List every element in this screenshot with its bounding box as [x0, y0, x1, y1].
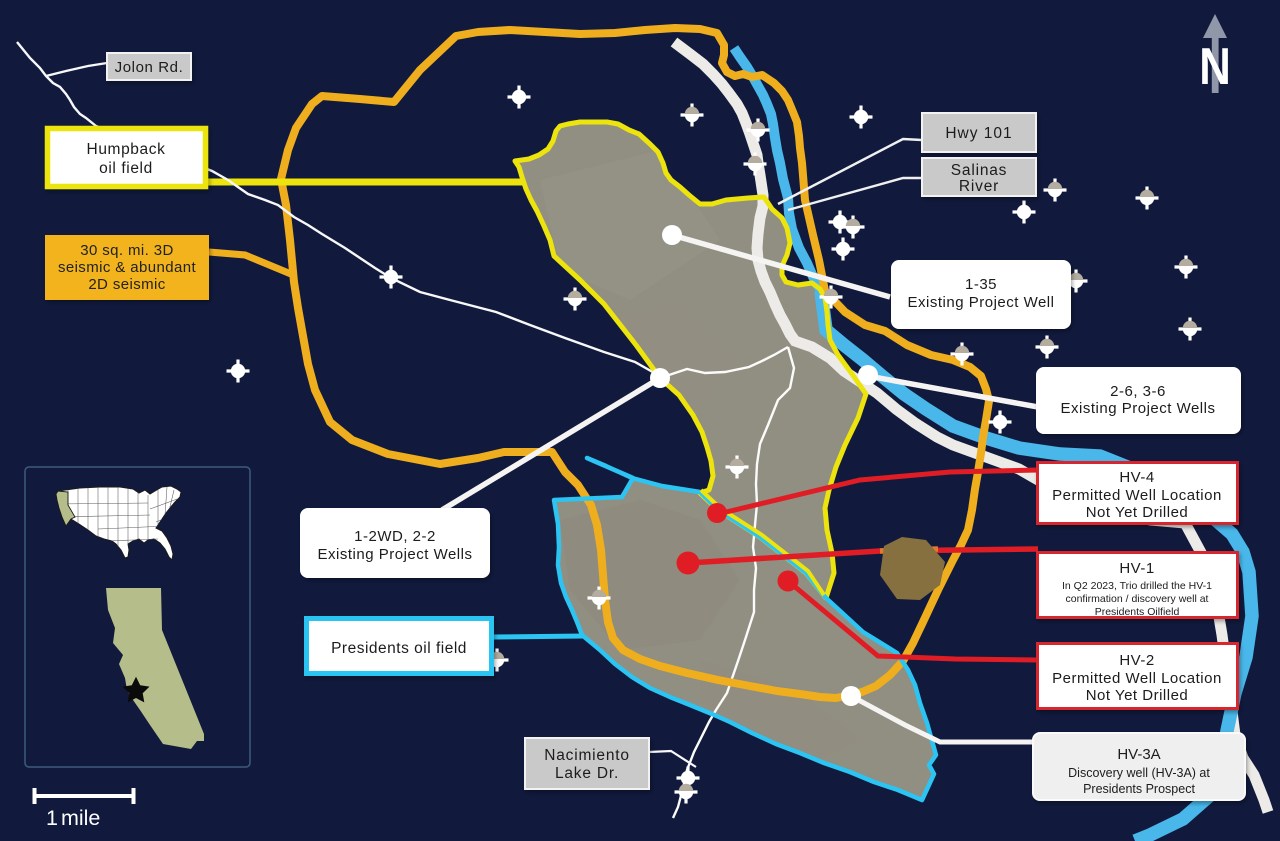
svg-text:Not Yet Drilled: Not Yet Drilled	[1086, 504, 1189, 521]
svg-text:seismic & abundant: seismic & abundant	[58, 259, 197, 276]
svg-text:HV-2: HV-2	[1119, 652, 1154, 669]
svg-text:Not Yet Drilled: Not Yet Drilled	[1086, 687, 1189, 704]
svg-text:Salinas: Salinas	[951, 162, 1007, 179]
svg-text:Existing Project Wells: Existing Project Wells	[1061, 400, 1216, 417]
svg-text:Existing Project Wells: Existing Project Wells	[318, 546, 473, 563]
svg-text:N: N	[1199, 39, 1231, 96]
svg-text:30 sq. mi. 3D: 30 sq. mi. 3D	[80, 242, 174, 259]
svg-text:HV-3A: HV-3A	[1117, 746, 1160, 763]
svg-text:Presidents oil field: Presidents oil field	[331, 640, 467, 657]
svg-text:1-2WD, 2-2: 1-2WD, 2-2	[354, 528, 436, 545]
svg-text:Humpback: Humpback	[87, 141, 166, 158]
svg-text:Lake Dr.: Lake Dr.	[555, 765, 619, 782]
svg-text:HV-4: HV-4	[1119, 469, 1154, 486]
svg-text:confirmation / discovery well: confirmation / discovery well at	[1066, 593, 1209, 605]
svg-text:1-35: 1-35	[965, 276, 997, 293]
svg-text:Existing Project Well: Existing Project Well	[908, 294, 1055, 311]
svg-text:Permitted Well Location: Permitted Well Location	[1052, 670, 1222, 687]
svg-text:HV-1: HV-1	[1119, 560, 1154, 577]
svg-text:River: River	[959, 178, 999, 195]
svg-text:Hwy 101: Hwy 101	[945, 125, 1012, 142]
svg-text:2-6, 3-6: 2-6, 3-6	[1110, 383, 1166, 400]
svg-text:1mile: 1mile	[46, 806, 100, 830]
svg-text:Permitted Well Location: Permitted Well Location	[1052, 487, 1222, 504]
svg-text:Jolon Rd.: Jolon Rd.	[115, 59, 184, 76]
svg-text:Nacimiento: Nacimiento	[544, 747, 630, 764]
svg-text:Presidents Prospect: Presidents Prospect	[1083, 782, 1195, 796]
svg-text:Discovery well (HV-3A) at: Discovery well (HV-3A) at	[1068, 766, 1210, 780]
svg-text:oil field: oil field	[99, 160, 153, 177]
svg-text:Presidents Oilfield: Presidents Oilfield	[1095, 606, 1180, 618]
svg-text:In Q2 2023, Trio drilled the H: In Q2 2023, Trio drilled the HV-1	[1062, 580, 1212, 592]
svg-text:2D seismic: 2D seismic	[88, 276, 165, 293]
